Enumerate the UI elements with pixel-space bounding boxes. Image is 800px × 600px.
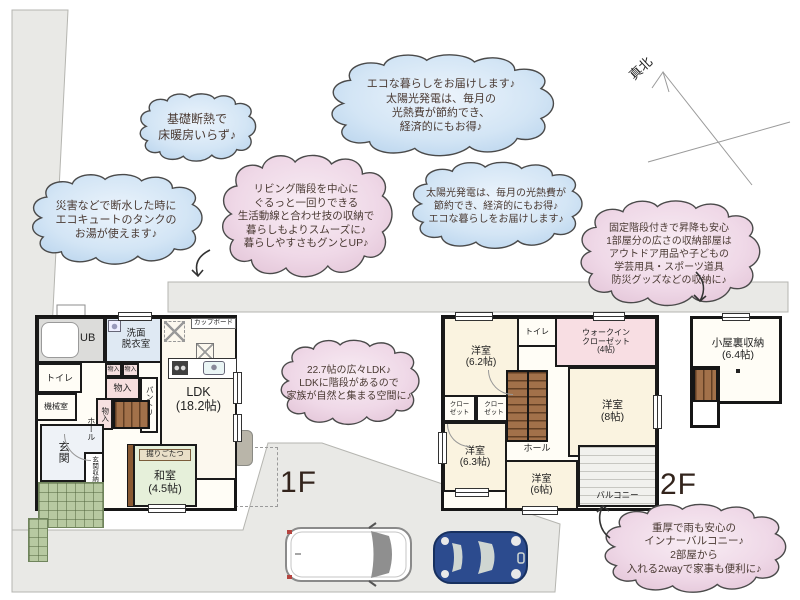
closet-2f-a: クロー ゼット [443, 395, 476, 422]
cupboard-label: カップボード [191, 318, 236, 329]
window [438, 432, 447, 464]
window [148, 504, 186, 513]
closet-storage-c: 物入 [105, 377, 140, 400]
window [233, 414, 242, 442]
sink-icon [203, 361, 225, 375]
window [455, 488, 489, 497]
stairs-attic [693, 368, 718, 402]
window [522, 506, 558, 515]
attic-dot-mark [736, 369, 740, 373]
room-wic: ウォークイン クローゼット (4帖) [555, 317, 657, 367]
washer-icon [108, 320, 121, 332]
pointer-arrow-icon [186, 248, 214, 280]
stairs-1f [113, 400, 150, 429]
window [455, 312, 493, 321]
window [233, 372, 242, 404]
window [653, 395, 662, 429]
closet-storage-a: 物入 [105, 363, 122, 377]
room-machine: 機械室 [35, 393, 77, 421]
minivan-icon [283, 522, 415, 588]
callout-text: エコな暮らしをお届けします♪ 太陽光発電は、毎月の 光熱費が節約でき、 経済的に… [367, 77, 516, 134]
window [593, 312, 625, 321]
approach-tiles [28, 518, 48, 562]
room-bedroom-6: 洋室 (6帖) [505, 460, 578, 510]
callout-attic-storage: 固定階段付きで昇降も安心 1部屋分の広さの収納部屋は アウトドア用品や子どもの … [573, 198, 765, 310]
callout-solar-power: 太陽光発電は、毎月の光熱費が 節約でき、経済的にもお得♪ エコな暮らしをお届けし… [405, 160, 587, 252]
callout-disaster-water: 災害などで断水した時に エコキュートのタンクの お湯が使えます♪ [25, 172, 207, 268]
pointer-arrow-icon [594, 504, 616, 540]
floorplan-page: 真北 UB 洗面 脱衣室 LDK (18.2帖) カップボード トイレ 機械室 … [0, 0, 800, 600]
room-balcony: バルコニー [578, 445, 657, 507]
north-arrow-icon: 真北 [600, 30, 800, 205]
callout-text: 22.7帖の広々LDK♪ LDKに階段があるので 家族が自然と集まる空間に♪ [287, 364, 412, 403]
callout-ldk-space: 22.7帖の広々LDK♪ LDKに階段があるので 家族が自然と集まる空間に♪ [275, 338, 423, 428]
floor2-label: 2F [660, 468, 697, 502]
window [722, 313, 750, 321]
callout-text: 災害などで断水した時に エコキュートのタンクの お湯が使えます♪ [56, 199, 177, 242]
pointer-arrow-icon [690, 270, 712, 304]
room-toilet-1f: トイレ [37, 363, 82, 393]
compact-car-icon [432, 528, 532, 588]
stove-icon [172, 361, 188, 375]
stair-divider [527, 372, 529, 440]
hall-2f-label: ホール [512, 444, 562, 454]
callout-eco-delivery: エコな暮らしをお届けします♪ 太陽光発電は、毎月の 光熱費が節約でき、 経済的に… [322, 52, 560, 160]
room-toilet-2f: トイレ [517, 317, 557, 347]
callout-living-stairs: リビング階段を中心に ぐるっと一回りできる 生活動線と合わせ技の収納で 暮らしも… [215, 152, 397, 282]
closet-storage-b: 物入 [122, 363, 139, 377]
room-unit-bath-label: UB [80, 332, 95, 344]
callout-text: 基礎断熱で 床暖房いらず♪ [158, 112, 236, 143]
callout-text: 太陽光発電は、毎月の光熱費が 節約でき、経済的にもお得♪ エコな暮らしをお届けし… [426, 187, 566, 226]
room-bedroom-8: 洋室 (8帖) [568, 367, 657, 457]
compass-label: 真北 [626, 54, 655, 83]
window [118, 312, 152, 321]
callout-text: リビング階段を中心に ぐるっと一回りできる 生活動線と合わせ技の収納で 暮らしも… [238, 183, 375, 251]
room-attic-label: 小屋裏収納 (6.4帖) [700, 338, 776, 361]
beam-mark-icon [164, 321, 185, 342]
bathtub-icon [41, 322, 79, 358]
callout-inner-balcony: 重厚で雨も安心の インナーバルコニー♪ 2部屋から 入れる2wayで家事も便利に… [597, 502, 791, 596]
kotatsu-label: 掘りごたつ [139, 449, 191, 461]
callout-text: 重厚で雨も安心の インナーバルコニー♪ 2部屋から 入れる2wayで家事も便利に… [627, 522, 762, 577]
floor1-label: 1F [280, 466, 317, 500]
callout-text: 固定階段付きで昇降も安心 1部屋分の広さの収納部屋は アウトドア用品や子どもの … [606, 222, 732, 287]
